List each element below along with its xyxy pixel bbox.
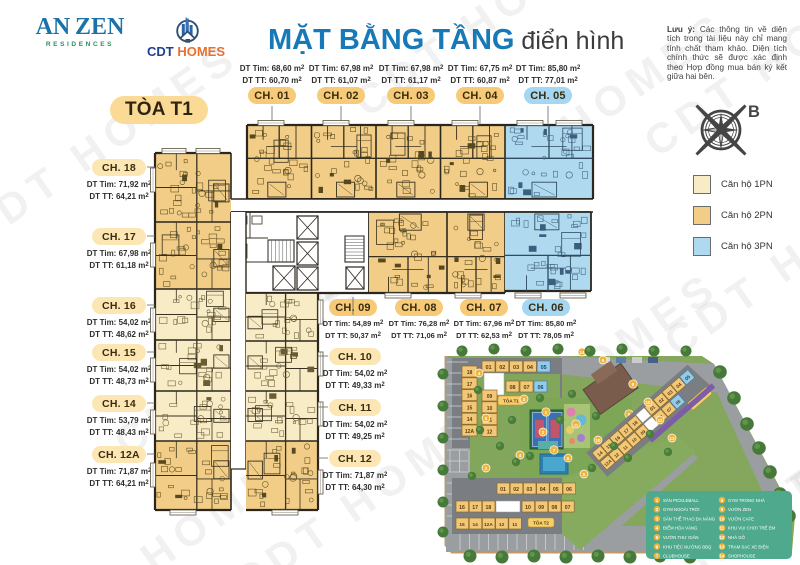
svg-text:03: 03 bbox=[513, 365, 519, 371]
svg-text:12A: 12A bbox=[484, 522, 493, 528]
svg-text:7: 7 bbox=[553, 448, 556, 454]
svg-text:17: 17 bbox=[472, 505, 478, 511]
svg-text:1: 1 bbox=[545, 410, 548, 416]
svg-text:11: 11 bbox=[512, 522, 517, 528]
svg-text:14: 14 bbox=[580, 350, 585, 355]
svg-text:08: 08 bbox=[509, 385, 515, 391]
svg-text:16: 16 bbox=[459, 505, 465, 511]
svg-text:06: 06 bbox=[566, 487, 572, 493]
svg-text:14: 14 bbox=[467, 417, 473, 423]
svg-text:13: 13 bbox=[720, 544, 725, 549]
svg-text:VƯỜN THƯ GIÃN: VƯỜN THƯ GIÃN bbox=[663, 535, 699, 540]
svg-text:12: 12 bbox=[487, 429, 493, 435]
svg-text:NHÀ GỖ: NHÀ GỖ bbox=[728, 535, 746, 540]
svg-text:12: 12 bbox=[658, 418, 663, 423]
svg-text:SÂN THỂ THAO ĐA NĂNG: SÂN THỂ THAO ĐA NĂNG bbox=[663, 516, 716, 521]
svg-text:06: 06 bbox=[537, 385, 543, 391]
svg-text:07: 07 bbox=[565, 505, 571, 511]
svg-text:13: 13 bbox=[670, 436, 675, 441]
svg-text:09: 09 bbox=[538, 505, 544, 511]
svg-text:01: 01 bbox=[485, 365, 491, 371]
svg-text:12: 12 bbox=[499, 522, 505, 528]
svg-text:18: 18 bbox=[486, 505, 492, 511]
svg-text:01: 01 bbox=[500, 487, 506, 493]
svg-text:ĐIỂM HÓA VÀNG: ĐIỂM HÓA VÀNG bbox=[663, 526, 698, 531]
svg-text:14: 14 bbox=[473, 522, 479, 528]
svg-text:03: 03 bbox=[527, 487, 533, 493]
svg-text:12A: 12A bbox=[465, 429, 475, 435]
svg-text:07: 07 bbox=[523, 385, 529, 391]
svg-text:11: 11 bbox=[574, 423, 578, 427]
svg-text:18: 18 bbox=[467, 370, 473, 376]
svg-text:VƯỜN CAFE: VƯỜN CAFE bbox=[728, 516, 754, 521]
svg-text:SÂN PICKLEBALL: SÂN PICKLEBALL bbox=[663, 498, 699, 503]
svg-text:CLUBHOUSE: CLUBHOUSE bbox=[663, 554, 690, 559]
svg-text:11: 11 bbox=[720, 526, 725, 531]
svg-text:05: 05 bbox=[553, 487, 559, 493]
svg-text:04: 04 bbox=[540, 487, 546, 493]
svg-text:10: 10 bbox=[646, 400, 651, 405]
svg-text:14: 14 bbox=[720, 554, 725, 559]
svg-text:SHOPHOUSE: SHOPHOUSE bbox=[728, 554, 756, 559]
svg-text:KHU TIỆC NƯỚNG BBQ: KHU TIỆC NƯỚNG BBQ bbox=[663, 544, 712, 549]
svg-text:GYM TRONG NHÀ: GYM TRONG NHÀ bbox=[728, 498, 765, 503]
svg-text:02: 02 bbox=[499, 365, 505, 371]
svg-text:10: 10 bbox=[596, 438, 601, 443]
svg-text:10: 10 bbox=[720, 516, 725, 521]
svg-text:15: 15 bbox=[459, 522, 465, 528]
svg-text:12: 12 bbox=[720, 535, 725, 540]
svg-text:16: 16 bbox=[467, 394, 473, 400]
svg-text:8: 8 bbox=[632, 382, 635, 388]
svg-text:TÒA T2: TÒA T2 bbox=[533, 519, 549, 526]
svg-text:VƯỜN ZEN: VƯỜN ZEN bbox=[728, 507, 751, 512]
svg-text:09: 09 bbox=[487, 394, 493, 400]
svg-text:TÒA T1: TÒA T1 bbox=[503, 397, 519, 404]
svg-text:08: 08 bbox=[552, 505, 558, 511]
svg-text:02: 02 bbox=[513, 487, 519, 493]
svg-text:10: 10 bbox=[487, 406, 493, 412]
svg-text:GYM NGOÀI TRỜI: GYM NGOÀI TRỜI bbox=[663, 507, 700, 512]
svg-text:17: 17 bbox=[467, 382, 473, 388]
svg-text:15: 15 bbox=[467, 405, 473, 411]
svg-text:10: 10 bbox=[525, 505, 531, 511]
svg-text:KHU VUI CHƠI TRẺ EM: KHU VUI CHƠI TRẺ EM bbox=[728, 526, 775, 531]
svg-text:TRẠM SẠC XE ĐIỆN: TRẠM SẠC XE ĐIỆN bbox=[728, 544, 769, 549]
svg-text:05: 05 bbox=[541, 365, 547, 371]
svg-text:04: 04 bbox=[527, 365, 534, 371]
